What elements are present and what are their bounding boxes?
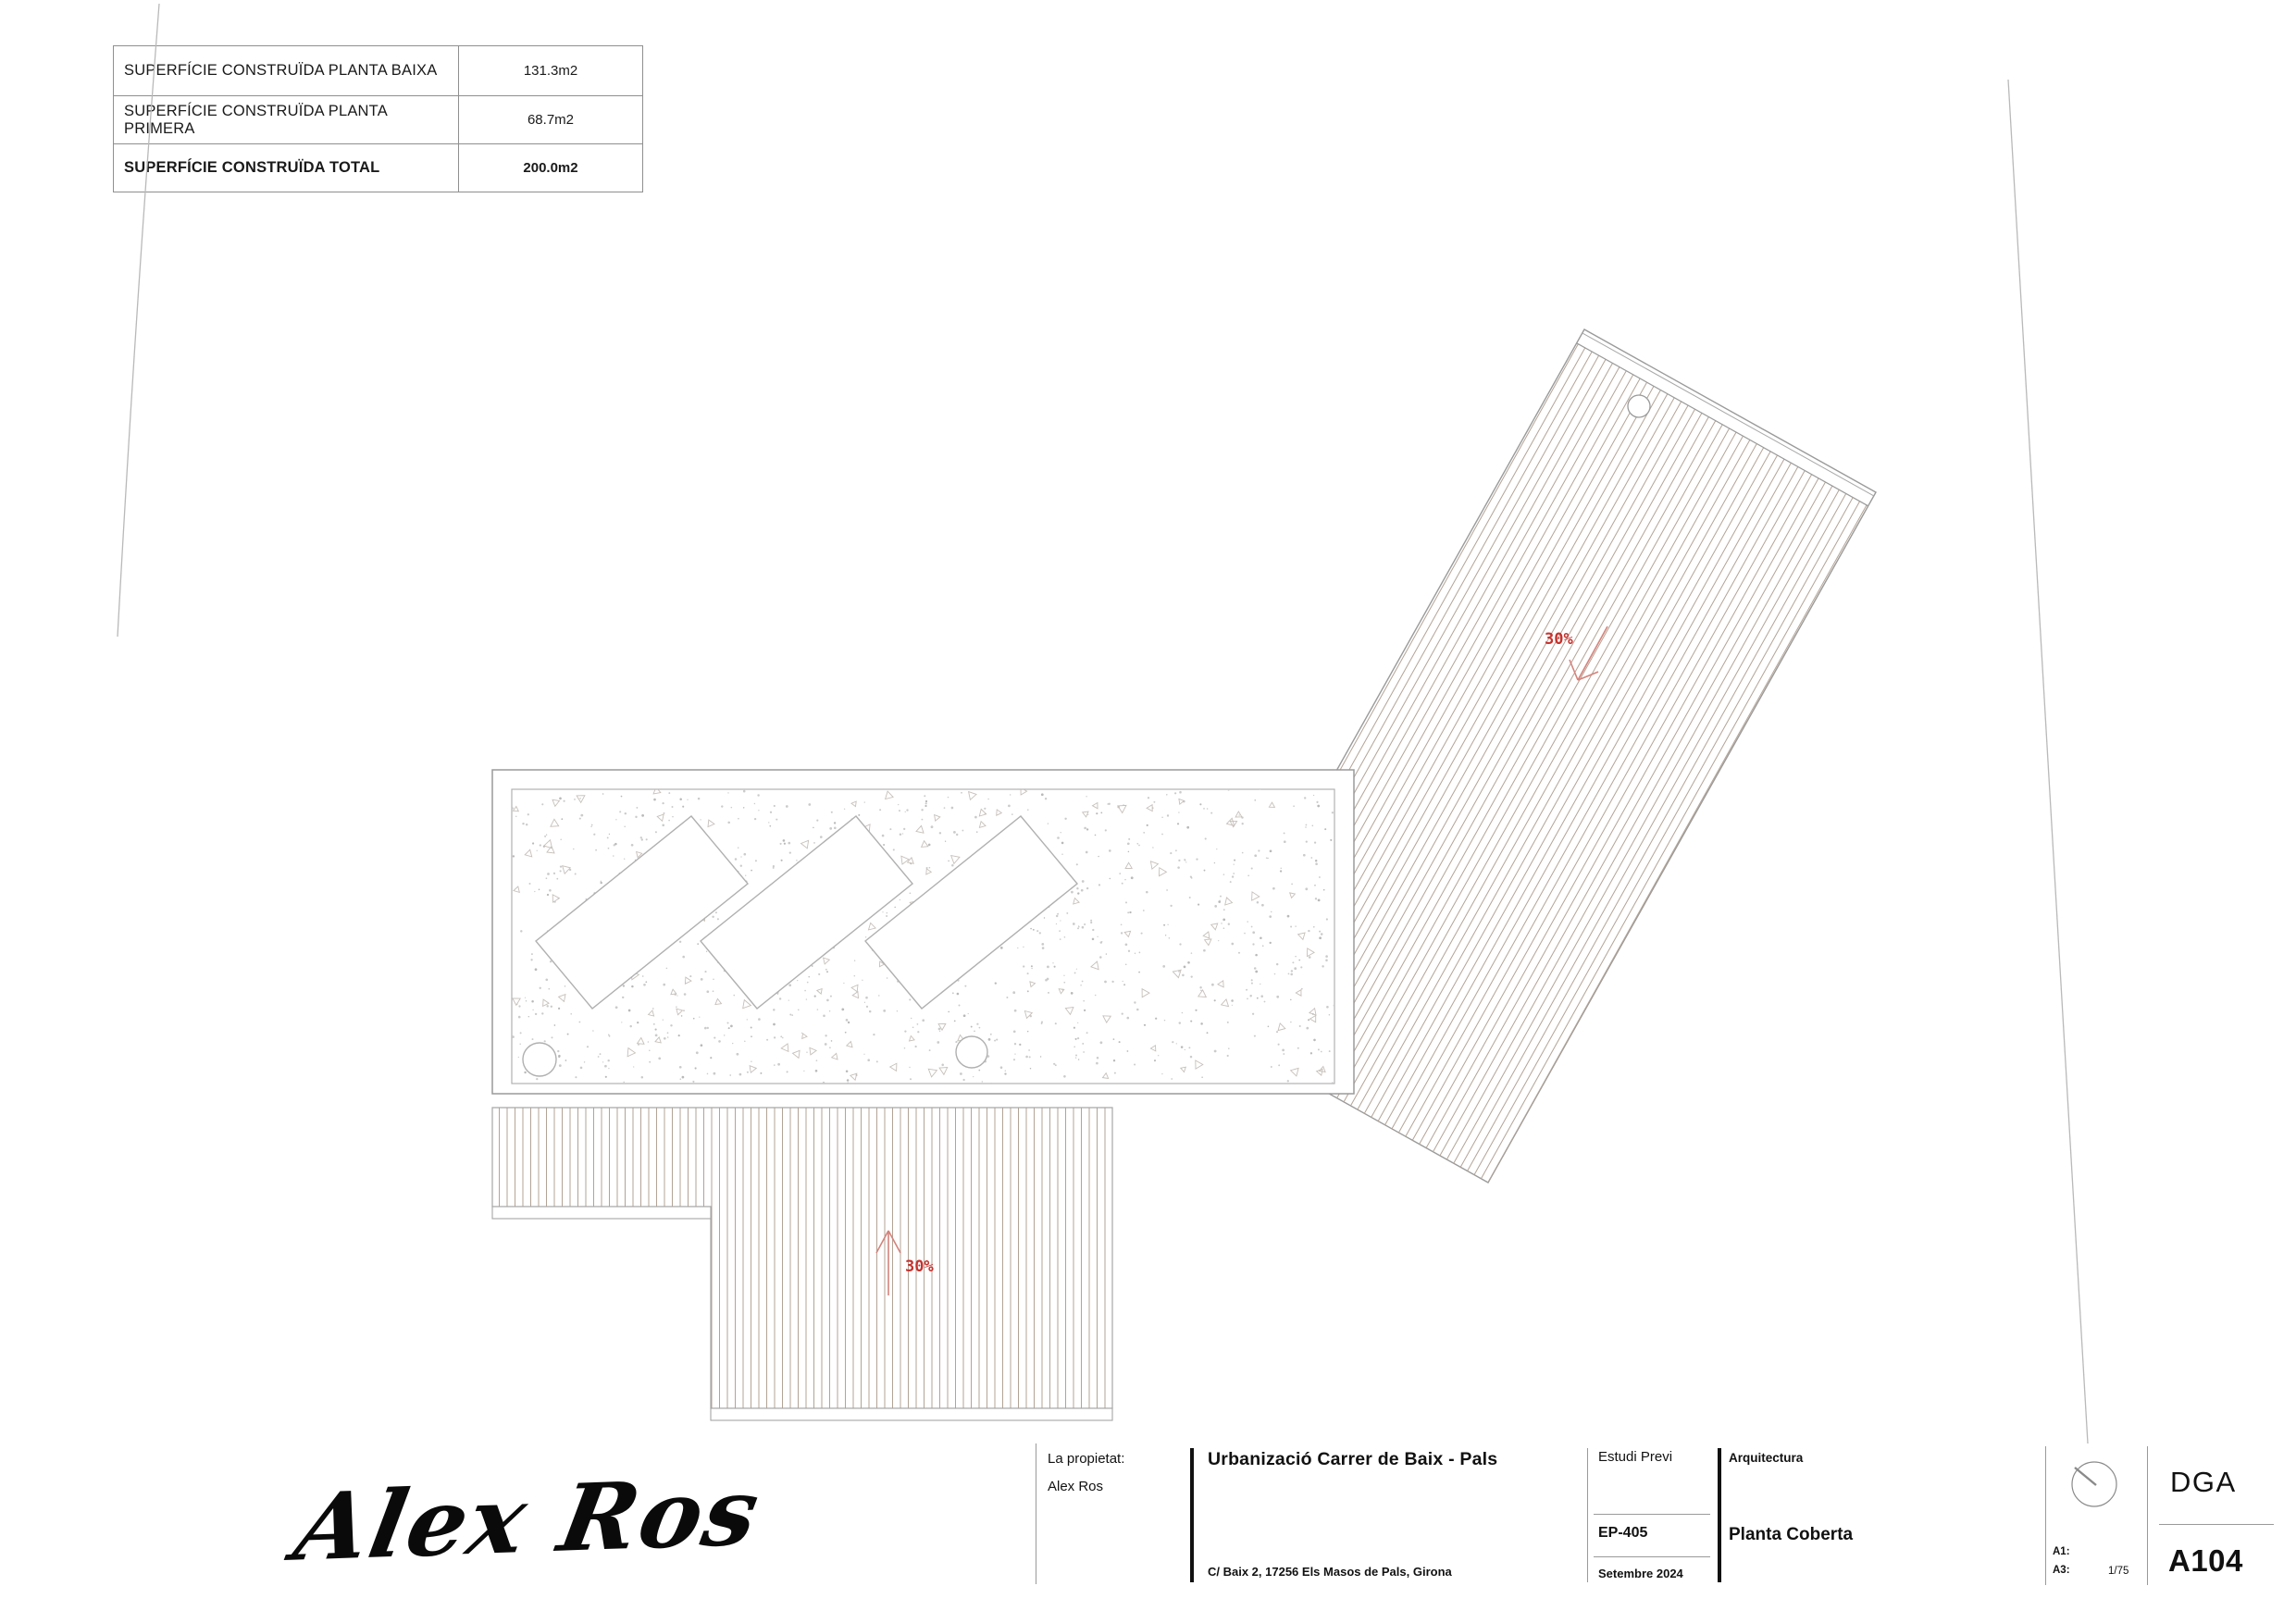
flat-roof-terrace [492,770,1354,1094]
roof-eave-band [711,1408,1112,1420]
boundary-line-right [2008,80,2088,1443]
north-arrow-icon [2066,1456,2125,1515]
divider [1594,1514,1710,1515]
divider [2147,1446,2148,1585]
roof-eave-band [492,1207,711,1219]
owner-name: Alex Ros [1048,1479,1103,1494]
owner-label: La propietat: [1048,1451,1124,1467]
drain-circle [523,1043,556,1076]
date: Setembre 2024 [1598,1567,1683,1580]
sloped-roof-lower [492,1108,1112,1420]
discipline-label: Arquitectura [1729,1451,1803,1465]
divider-bar [1190,1448,1194,1582]
owner-signature: Alex Ros [279,1455,828,1623]
firm-logo-text: DGA [2170,1466,2237,1499]
boundary-line-left [118,4,159,637]
sheet-number: A104 [2168,1543,2243,1579]
scale-a1-label: A1: [2053,1546,2070,1557]
scale-a3-label: A3: [2053,1565,2070,1576]
divider [1587,1448,1588,1582]
sheet-title: Planta Coberta [1729,1525,1853,1545]
project-address: C/ Baix 2, 17256 Els Masos de Pals, Giro… [1208,1565,1452,1579]
chimney-icon [1628,395,1650,417]
divider-bar [1718,1448,1721,1582]
slope-label-lower: 30% [905,1258,934,1276]
drain-circle [956,1036,987,1068]
drawing-sheet: SUPERFÍCIE CONSTRUÏDA PLANTA BAIXA 131.3… [0,0,2296,1623]
divider [2159,1524,2274,1525]
divider [1594,1556,1710,1557]
divider [2045,1446,2046,1585]
divider [1036,1443,1036,1584]
phase-label: Estudi Previ [1598,1449,1672,1465]
project-title: Urbanizació Carrer de Baix - Pals [1208,1449,1497,1470]
slope-label-upper: 30% [1545,630,1573,649]
roof-plan-drawing: 30% 30% [0,0,2296,1623]
project-code: EP-405 [1598,1525,1647,1542]
scale-value: 1/75 [2108,1566,2128,1577]
